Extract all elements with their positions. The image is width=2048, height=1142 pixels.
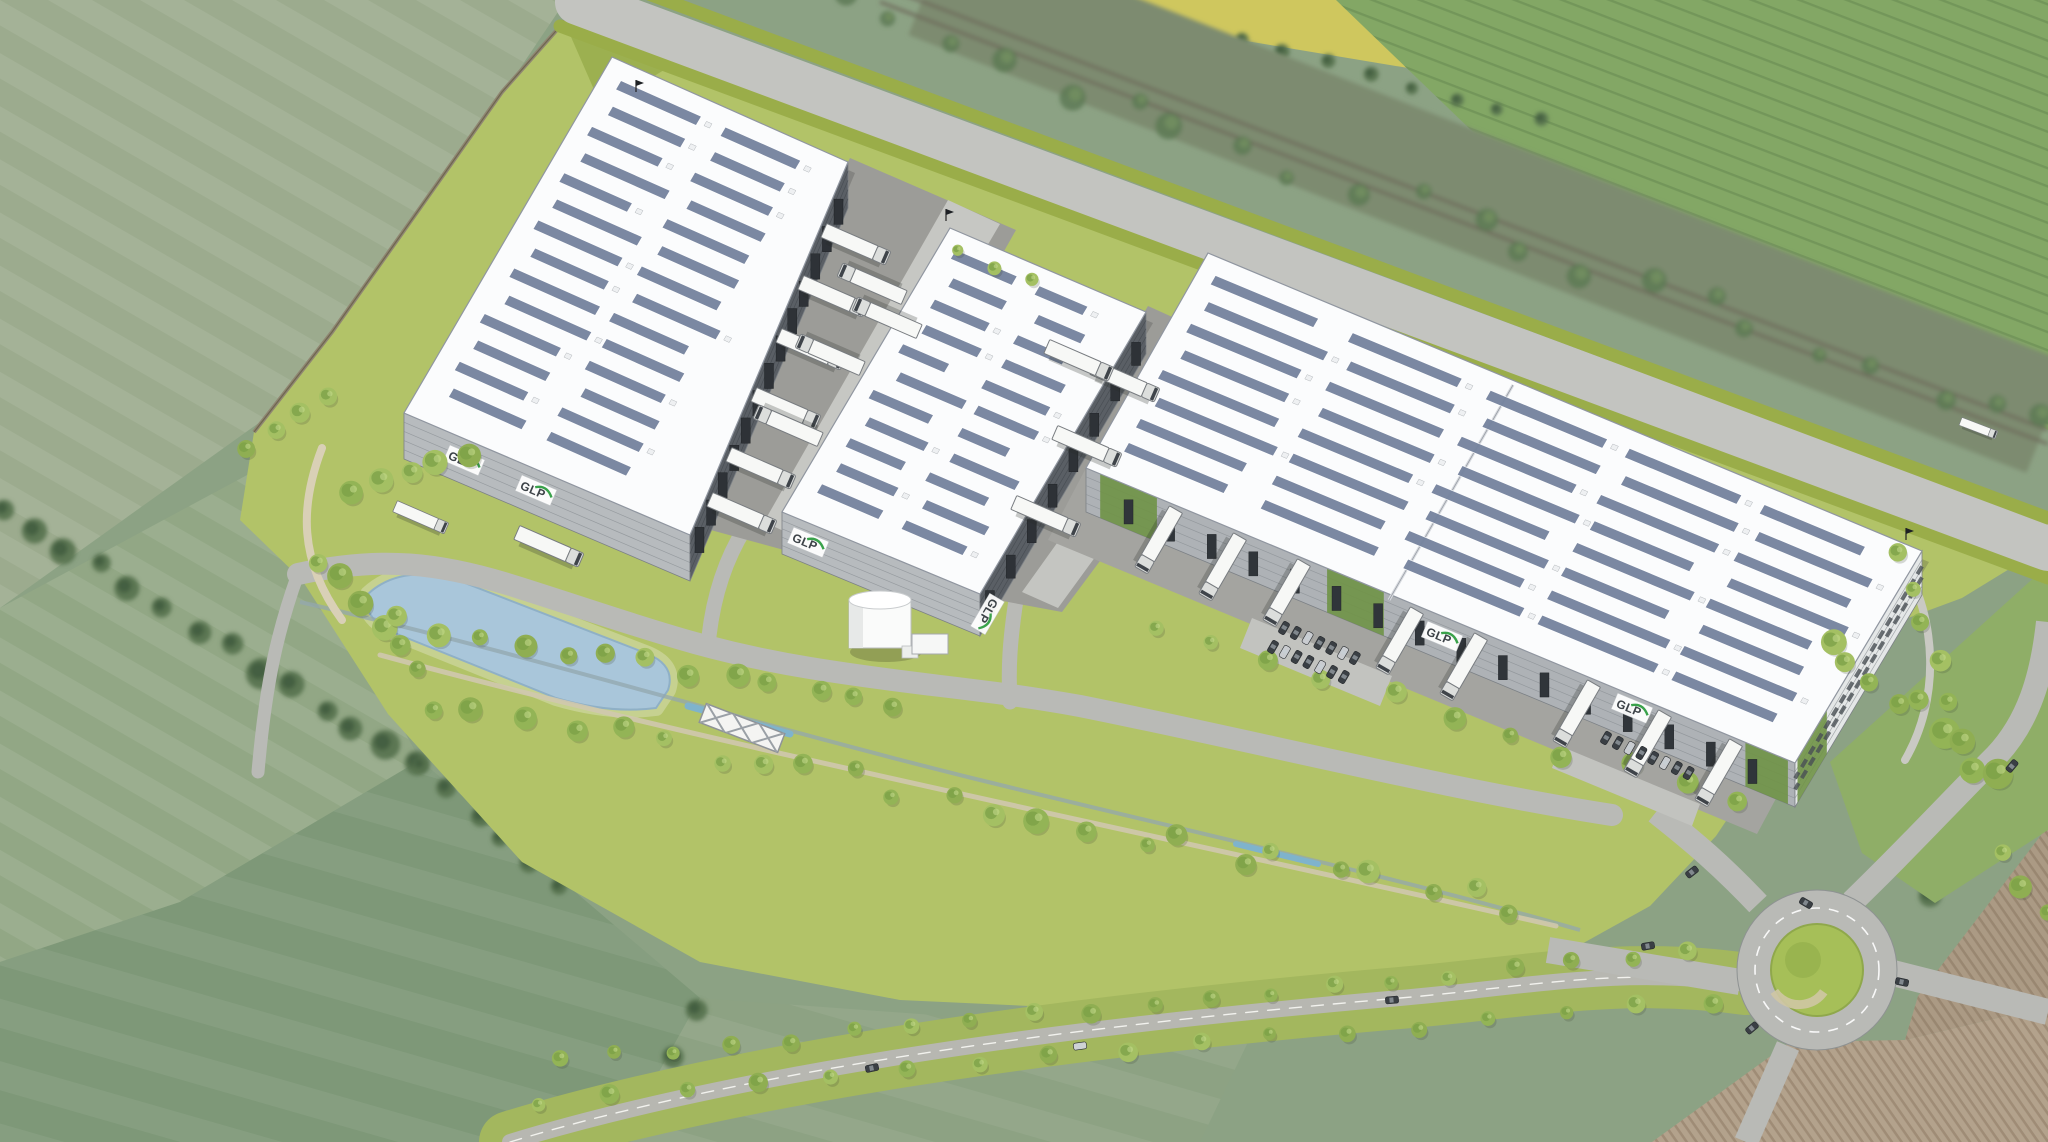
tree-highlight (1514, 961, 1519, 966)
railway-tree-light (1741, 322, 1750, 331)
tree-highlight (1085, 826, 1091, 832)
dock-door (1540, 673, 1549, 697)
dock-door (1048, 484, 1057, 507)
tree-highlight (1035, 813, 1043, 821)
tree-highlight (1996, 765, 2005, 774)
tree-highlight (1687, 945, 1693, 951)
tree-highlight (763, 758, 769, 764)
tree-highlight (1210, 994, 1215, 999)
tree-highlight (1245, 858, 1251, 864)
railway-tree-light (1165, 116, 1178, 129)
tree-highlight (608, 1088, 614, 1094)
tree-highlight (1175, 828, 1181, 834)
tree-highlight (1868, 677, 1873, 682)
yard2-connector (1009, 600, 1016, 702)
tree-highlight (438, 628, 445, 635)
tree-highlight (969, 1016, 973, 1020)
tree-highlight (890, 793, 895, 798)
tree-highlight (399, 639, 405, 645)
tree-highlight (1635, 998, 1641, 1004)
tree-highlight (1270, 991, 1274, 995)
car-glass (1077, 1043, 1082, 1049)
tree-highlight (1334, 979, 1339, 984)
hedge-tree-core (53, 541, 68, 556)
tree-highlight (644, 652, 650, 658)
tree-highlight (892, 701, 898, 707)
tree-highlight (1912, 585, 1917, 590)
tree-highlight (1897, 547, 1903, 553)
dock-door (788, 309, 797, 334)
railway-tree-light (2037, 407, 2048, 419)
tree-highlight (1570, 955, 1575, 960)
tree-highlight (468, 448, 475, 455)
hedge-tree-core (1323, 56, 1331, 64)
tree-highlight (1566, 1009, 1570, 1013)
dock-door (1090, 413, 1099, 436)
dock-door (695, 527, 704, 552)
dock-door (1006, 555, 1015, 578)
railway-tree-light (1069, 88, 1082, 101)
car (1073, 1042, 1087, 1051)
tree-highlight (1947, 696, 1952, 701)
tree-highlight (802, 758, 808, 764)
railway-tree-light (1943, 393, 1953, 403)
railway-tree-light (1868, 359, 1877, 368)
tree-highlight (524, 711, 531, 718)
tree-highlight (663, 733, 668, 738)
hedge-tree-core (374, 734, 390, 750)
tree-highlight (2019, 880, 2026, 887)
tree-highlight (1395, 686, 1401, 692)
tree-highlight (1919, 617, 1924, 622)
aerial-masterplan-rendering: GLPGLPGLPGLPGLPGLP (0, 0, 2048, 1142)
tree-highlight (1712, 998, 1718, 1004)
hedge-tree-core (117, 579, 131, 593)
car-glass (1389, 997, 1393, 1002)
tree-highlight (469, 702, 476, 709)
tree-highlight (830, 1073, 834, 1077)
tree-highlight (821, 685, 827, 691)
tree-highlight (525, 639, 532, 646)
tree-highlight (906, 1064, 911, 1069)
tree-highlight (1448, 974, 1453, 979)
tree-highlight (1476, 882, 1482, 888)
tree-highlight (1090, 1008, 1096, 1014)
railway-tree-light (948, 37, 957, 46)
tree-highlight (1917, 694, 1923, 700)
tree-highlight (993, 809, 1000, 816)
tree-highlight (576, 725, 582, 731)
hedge-tree-core (1536, 114, 1544, 122)
tree-highlight (1560, 751, 1566, 757)
tree-highlight (433, 705, 438, 710)
tree-highlight (757, 1077, 763, 1083)
dock-door (1748, 759, 1757, 783)
tree-highlight (1844, 656, 1850, 662)
dock-door (834, 199, 843, 224)
railway-tree-light (885, 13, 893, 21)
tree-highlight (1433, 887, 1438, 892)
dock-door (1374, 604, 1383, 628)
tree-highlight (1340, 865, 1345, 870)
tree-highlight (954, 790, 959, 795)
car (1385, 996, 1399, 1004)
tree-highlight (350, 486, 357, 493)
dock-door (1665, 725, 1674, 749)
tree-highlight (538, 1101, 542, 1105)
hedge-tree-core (282, 675, 296, 689)
dock-door (1498, 656, 1507, 680)
tree-highlight (411, 466, 417, 472)
tree-highlight (317, 558, 323, 564)
gatehouse (912, 634, 948, 654)
tree-highlight (613, 1048, 617, 1052)
tree-highlight (1736, 796, 1742, 802)
railway-tree-light (1001, 51, 1013, 63)
tree-highlight (559, 1053, 564, 1058)
tree-highlight (245, 444, 250, 449)
tree-highlight (1898, 698, 1904, 704)
tree-highlight (1320, 674, 1326, 680)
dock-door (1207, 534, 1216, 558)
hedge-tree-core (415, 759, 424, 768)
tree-highlight (417, 664, 422, 669)
tree-highlight (790, 1038, 795, 1043)
railway-tree-light (1995, 397, 2004, 406)
railway-tree-light (1515, 244, 1525, 254)
hedge-tree-core (224, 635, 236, 647)
tree-highlight (568, 651, 573, 656)
tree-highlight (957, 247, 960, 250)
tree-highlight (687, 669, 694, 676)
tree-highlight (1210, 638, 1214, 642)
dock-door (718, 473, 727, 498)
hedge-tree-core (1492, 105, 1499, 112)
tree-highlight (1454, 712, 1461, 719)
tree-highlight (979, 1060, 984, 1065)
hedge-tree-core (439, 780, 450, 791)
tree-highlight (852, 691, 857, 696)
hedge-tree-core (25, 521, 39, 535)
railway-tree-light (1138, 95, 1146, 103)
tree-highlight (380, 473, 387, 480)
dock-door (811, 254, 820, 279)
tree-highlight (1033, 1007, 1038, 1012)
hedge-tree-core (1452, 95, 1459, 102)
tree-highlight (1833, 634, 1841, 642)
railway-tree-light (1421, 185, 1429, 193)
tree-highlight (1632, 955, 1637, 960)
tree-highlight (623, 721, 629, 727)
tree-highlight (327, 391, 332, 396)
tree-highlight (1961, 734, 1969, 742)
car-glass (1645, 943, 1650, 949)
tree-highlight (604, 647, 610, 653)
tree-highlight (1510, 731, 1515, 736)
tree-highlight (1031, 275, 1035, 279)
tree-highlight (1487, 1014, 1491, 1018)
tree-highlight (339, 568, 347, 576)
hedge-tree-core (341, 720, 354, 733)
tree-highlight (1155, 1000, 1160, 1005)
tree-highlight (1201, 1036, 1206, 1041)
tree-highlight (1147, 840, 1151, 844)
railway-tree-light (1714, 289, 1723, 298)
dock-door (1132, 342, 1141, 365)
tree-highlight (2002, 848, 2007, 853)
tree-highlight (434, 455, 442, 463)
tree-highlight (722, 759, 727, 764)
tree-highlight (276, 425, 281, 430)
dock-door (1124, 500, 1133, 524)
hedge-tree-core (688, 1002, 700, 1014)
tree-highlight (737, 668, 744, 675)
dock-door (1332, 586, 1341, 610)
railway-tree-light (1817, 350, 1824, 357)
railway-tree-light (1483, 211, 1494, 222)
tree-highlight (1155, 624, 1160, 629)
tree-highlight (1418, 1025, 1423, 1030)
hedge-tree-core (154, 600, 165, 611)
railway-tree-light (1355, 186, 1366, 197)
railway-tree-light (1240, 139, 1249, 148)
tree-highlight (1267, 654, 1273, 660)
tree-highlight (1048, 1049, 1053, 1054)
tree-highlight (911, 1021, 916, 1026)
tree-highlight (1270, 846, 1275, 851)
hedge-tree-core (320, 704, 331, 715)
tree-highlight (994, 264, 998, 268)
tree-highlight (672, 1049, 676, 1053)
dock-door (741, 418, 750, 443)
hedge-tree-core (1366, 69, 1374, 77)
railway-tree-light (1651, 271, 1664, 284)
tree-highlight (1971, 763, 1979, 771)
tree-highlight (855, 764, 860, 769)
tree-highlight (1939, 654, 1945, 660)
tree-highlight (1347, 1029, 1352, 1034)
hedge-tree-core (191, 624, 204, 637)
tree-highlight (1127, 1046, 1133, 1052)
glp-logistics-park-rendering: GLPGLPGLPGLPGLPGLP (0, 0, 2048, 1142)
tree-highlight (1390, 979, 1394, 983)
tree-highlight (1943, 724, 1952, 733)
tree-highlight (1367, 864, 1374, 871)
sprinkler-tank-top (849, 591, 911, 609)
dock-door (765, 363, 774, 388)
dock-door (1249, 552, 1258, 576)
tree-highlight (687, 1085, 692, 1090)
hedge-tree-core (1407, 84, 1414, 91)
tree-highlight (299, 407, 305, 413)
tree-highlight (766, 677, 772, 683)
tree-highlight (1507, 908, 1513, 914)
tree-highlight (359, 596, 367, 604)
hedge-tree-core (94, 556, 104, 566)
railway-tree-light (1284, 172, 1291, 179)
tree-highlight (396, 610, 402, 616)
tree-highlight (479, 633, 484, 638)
railway-tree-light (1575, 267, 1587, 279)
tree-highlight (854, 1024, 858, 1028)
tree-highlight (1269, 1030, 1273, 1034)
island-planting (1785, 942, 1821, 978)
tree-highlight (730, 1039, 735, 1044)
